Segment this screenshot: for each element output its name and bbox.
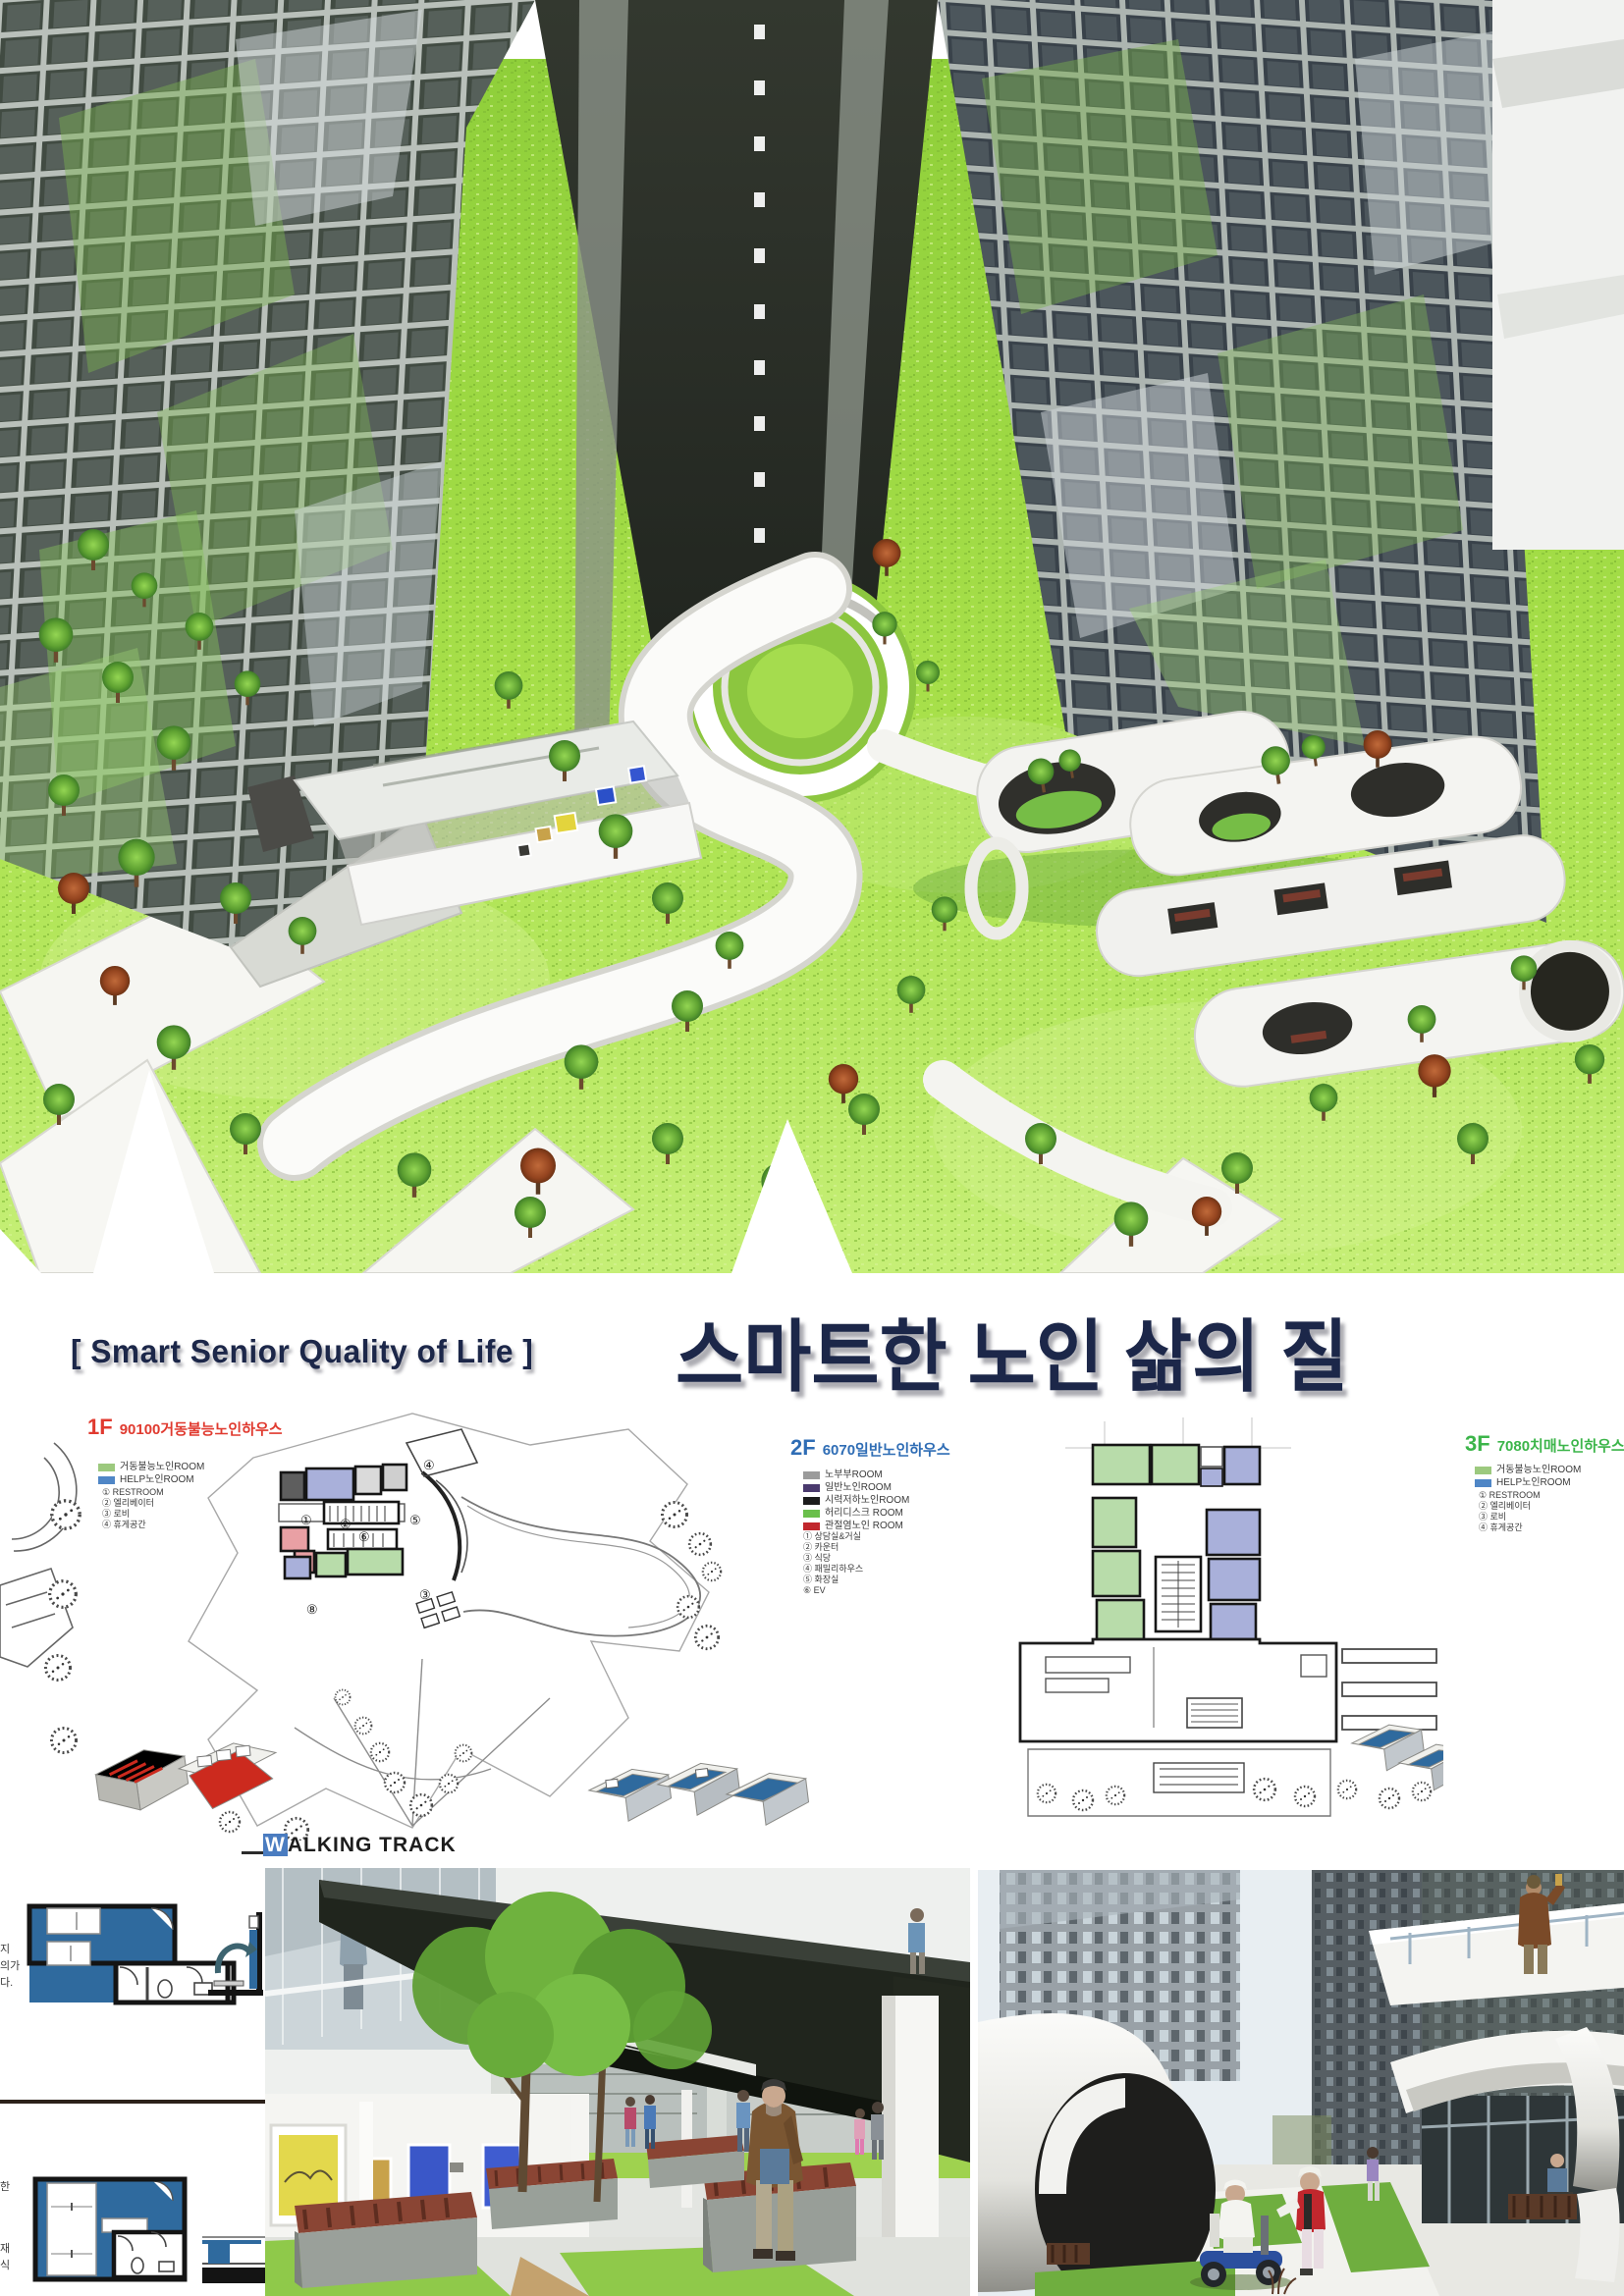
legend-swatch bbox=[803, 1484, 820, 1492]
plan-item: ④ 패밀리하우스 bbox=[803, 1564, 863, 1575]
plan-marker: ① bbox=[300, 1514, 312, 1526]
parcel-outline bbox=[189, 1414, 709, 1828]
legend-row: 관절염노인 ROOM bbox=[803, 1521, 909, 1531]
terrace-trees bbox=[1038, 1779, 1431, 1810]
legend-row: 시력저하노인ROOM bbox=[803, 1495, 909, 1506]
edge-partial-plan bbox=[0, 1443, 77, 1667]
axon-unit-red-2 bbox=[177, 1739, 281, 1812]
plan-item: ① 상담실&거실 bbox=[803, 1531, 863, 1542]
plan-2f-floor-label: 2F bbox=[790, 1435, 816, 1461]
axon-unit-blue-row bbox=[587, 1759, 811, 1830]
legend-swatch bbox=[803, 1510, 820, 1518]
lower-block bbox=[1020, 1639, 1336, 1741]
plan-marker: ④ bbox=[423, 1459, 435, 1471]
legend-row: 거동불능노인ROOM bbox=[1475, 1465, 1581, 1475]
plan-item: ③ 로비 bbox=[1479, 1512, 1541, 1522]
section-divider-rule bbox=[0, 2100, 279, 2104]
plan-item: ⑥ EV bbox=[803, 1585, 863, 1596]
plan-2f-header: 2F 6070일반노인하우스 bbox=[790, 1435, 950, 1461]
bottom-terrace bbox=[1028, 1749, 1330, 1816]
legend-swatch bbox=[1475, 1467, 1491, 1474]
plan-3f-drawing bbox=[1006, 1404, 1443, 1841]
plan-3f-legend: 거동불능노인ROOM HELP노인ROOM bbox=[1475, 1465, 1581, 1488]
plan-2f-legend: 노부부ROOM 일반노인ROOM 시력저하노인ROOM 허리디스크 ROOM 관… bbox=[803, 1469, 909, 1531]
plan-marker: ② bbox=[340, 1518, 352, 1530]
main-title-korean: 스마트한 노인 삶의 질 bbox=[676, 1294, 1348, 1408]
plan-item: ① RESTROOM bbox=[1479, 1490, 1541, 1501]
legend-label: 거동불능노인ROOM bbox=[1496, 1466, 1581, 1475]
walking-track-highlight-letter: W bbox=[263, 1834, 288, 1856]
presentation-board: [ Smart Senior Quality of Life ] 스마트한 노인… bbox=[0, 0, 1624, 2296]
plan-2f-items: ① 상담실&거실 ② 카운터 ③ 식당 ④ 패밀리하우스 ⑤ 화장실 ⑥ EV bbox=[803, 1531, 863, 1596]
unit-plan-2 bbox=[27, 2171, 268, 2289]
english-subtitle: [ Smart Senior Quality of Life ] bbox=[71, 1333, 533, 1370]
terrace-bars bbox=[1342, 1649, 1436, 1730]
legend-swatch bbox=[803, 1522, 820, 1530]
margin-note-fragment: 식 bbox=[0, 2260, 10, 2271]
legend-swatch bbox=[803, 1497, 820, 1505]
unit-plan-1 bbox=[22, 1898, 267, 2008]
plan-item: ④ 휴게공간 bbox=[1479, 1522, 1541, 1533]
plan-item: ② 카운터 bbox=[803, 1542, 863, 1553]
plan-marker: ⑧ bbox=[306, 1603, 318, 1616]
margin-note-fragment: 다. bbox=[0, 1977, 13, 1989]
legend-swatch bbox=[803, 1471, 820, 1479]
walking-track-render bbox=[265, 1868, 970, 2296]
plan-marker: ③ bbox=[419, 1588, 431, 1601]
axon-unit-red-1 bbox=[93, 1744, 190, 1815]
unit-section-2 bbox=[202, 2237, 265, 2283]
legend-label: 일반노인ROOM bbox=[825, 1483, 892, 1493]
walking-track-rest: ALKING TRACK bbox=[288, 1834, 457, 1856]
plan-3f-floor-label: 3F bbox=[1465, 1431, 1490, 1457]
legend-label: 시력저하노인ROOM bbox=[825, 1496, 909, 1506]
legend-row: 일반노인ROOM bbox=[803, 1482, 909, 1493]
margin-note-fragment: 의가 bbox=[0, 1960, 20, 1972]
legend-label: 노부부ROOM bbox=[825, 1470, 883, 1480]
hero-aerial-render bbox=[0, 0, 1624, 1273]
plan-3f-items: ① RESTROOM ② 엘리베이터 ③ 로비 ④ 휴게공간 bbox=[1479, 1490, 1541, 1533]
legend-row: 허리디스크 ROOM bbox=[803, 1508, 909, 1519]
margin-note-fragment: 지 bbox=[0, 1944, 10, 1955]
plan-marker: ⑤ bbox=[409, 1514, 421, 1526]
axon-unit-blue-3f bbox=[1350, 1721, 1443, 1793]
unit-section-1 bbox=[208, 1912, 263, 1993]
plan-2f-name: 6070일반노인하우스 bbox=[823, 1439, 950, 1460]
upper-wing-rooms bbox=[1093, 1445, 1260, 1639]
margin-note-fragment: 한 bbox=[0, 2181, 10, 2193]
plan-item: ⑤ 화장실 bbox=[803, 1575, 863, 1585]
tube-pavilion-render bbox=[978, 1870, 1624, 2296]
margin-note-fragment: 재 bbox=[0, 2243, 10, 2255]
plan-3f-header: 3F 7080치매노인하우스 bbox=[1465, 1431, 1624, 1457]
legend-row: 노부부ROOM bbox=[803, 1469, 909, 1480]
legend-label: 관절염노인 ROOM bbox=[825, 1522, 903, 1531]
legend-swatch bbox=[1475, 1479, 1491, 1487]
walking-track-heading: WALKING TRACK bbox=[263, 1834, 457, 1857]
plan-item: ③ 식당 bbox=[803, 1553, 863, 1564]
legend-row: HELP노인ROOM bbox=[1475, 1477, 1581, 1488]
walking-track-tick bbox=[242, 1851, 263, 1854]
legend-label: 허리디스크 ROOM bbox=[825, 1509, 903, 1519]
legend-label: HELP노인ROOM bbox=[1496, 1478, 1571, 1488]
plan-marker: ⑥ bbox=[358, 1530, 370, 1543]
plan-item: ② 엘리베이터 bbox=[1479, 1501, 1541, 1512]
plan-3f-name: 7080치매노인하우스 bbox=[1497, 1435, 1624, 1456]
